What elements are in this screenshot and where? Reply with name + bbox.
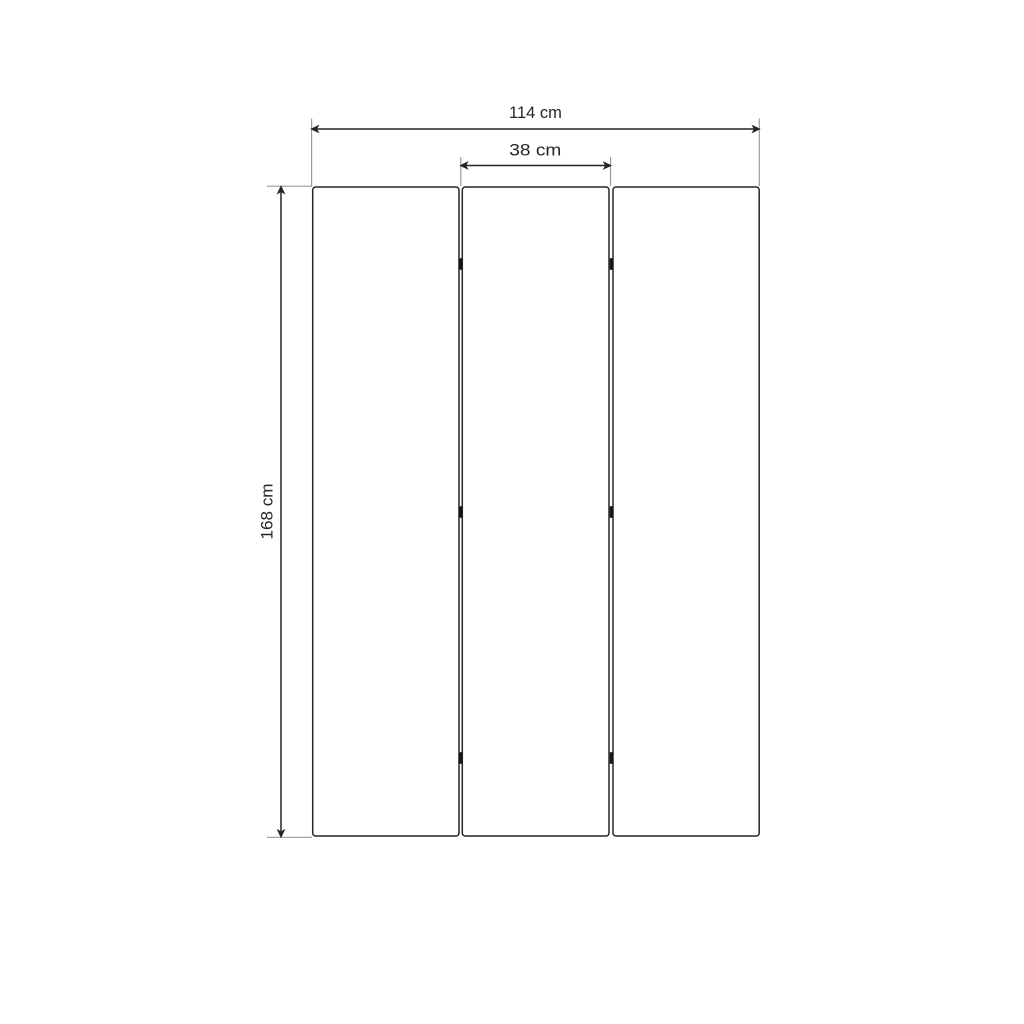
svg-text:114 cm: 114 cm	[509, 104, 562, 122]
svg-text:38 cm: 38 cm	[509, 142, 561, 160]
svg-text:168 cm: 168 cm	[259, 484, 277, 540]
